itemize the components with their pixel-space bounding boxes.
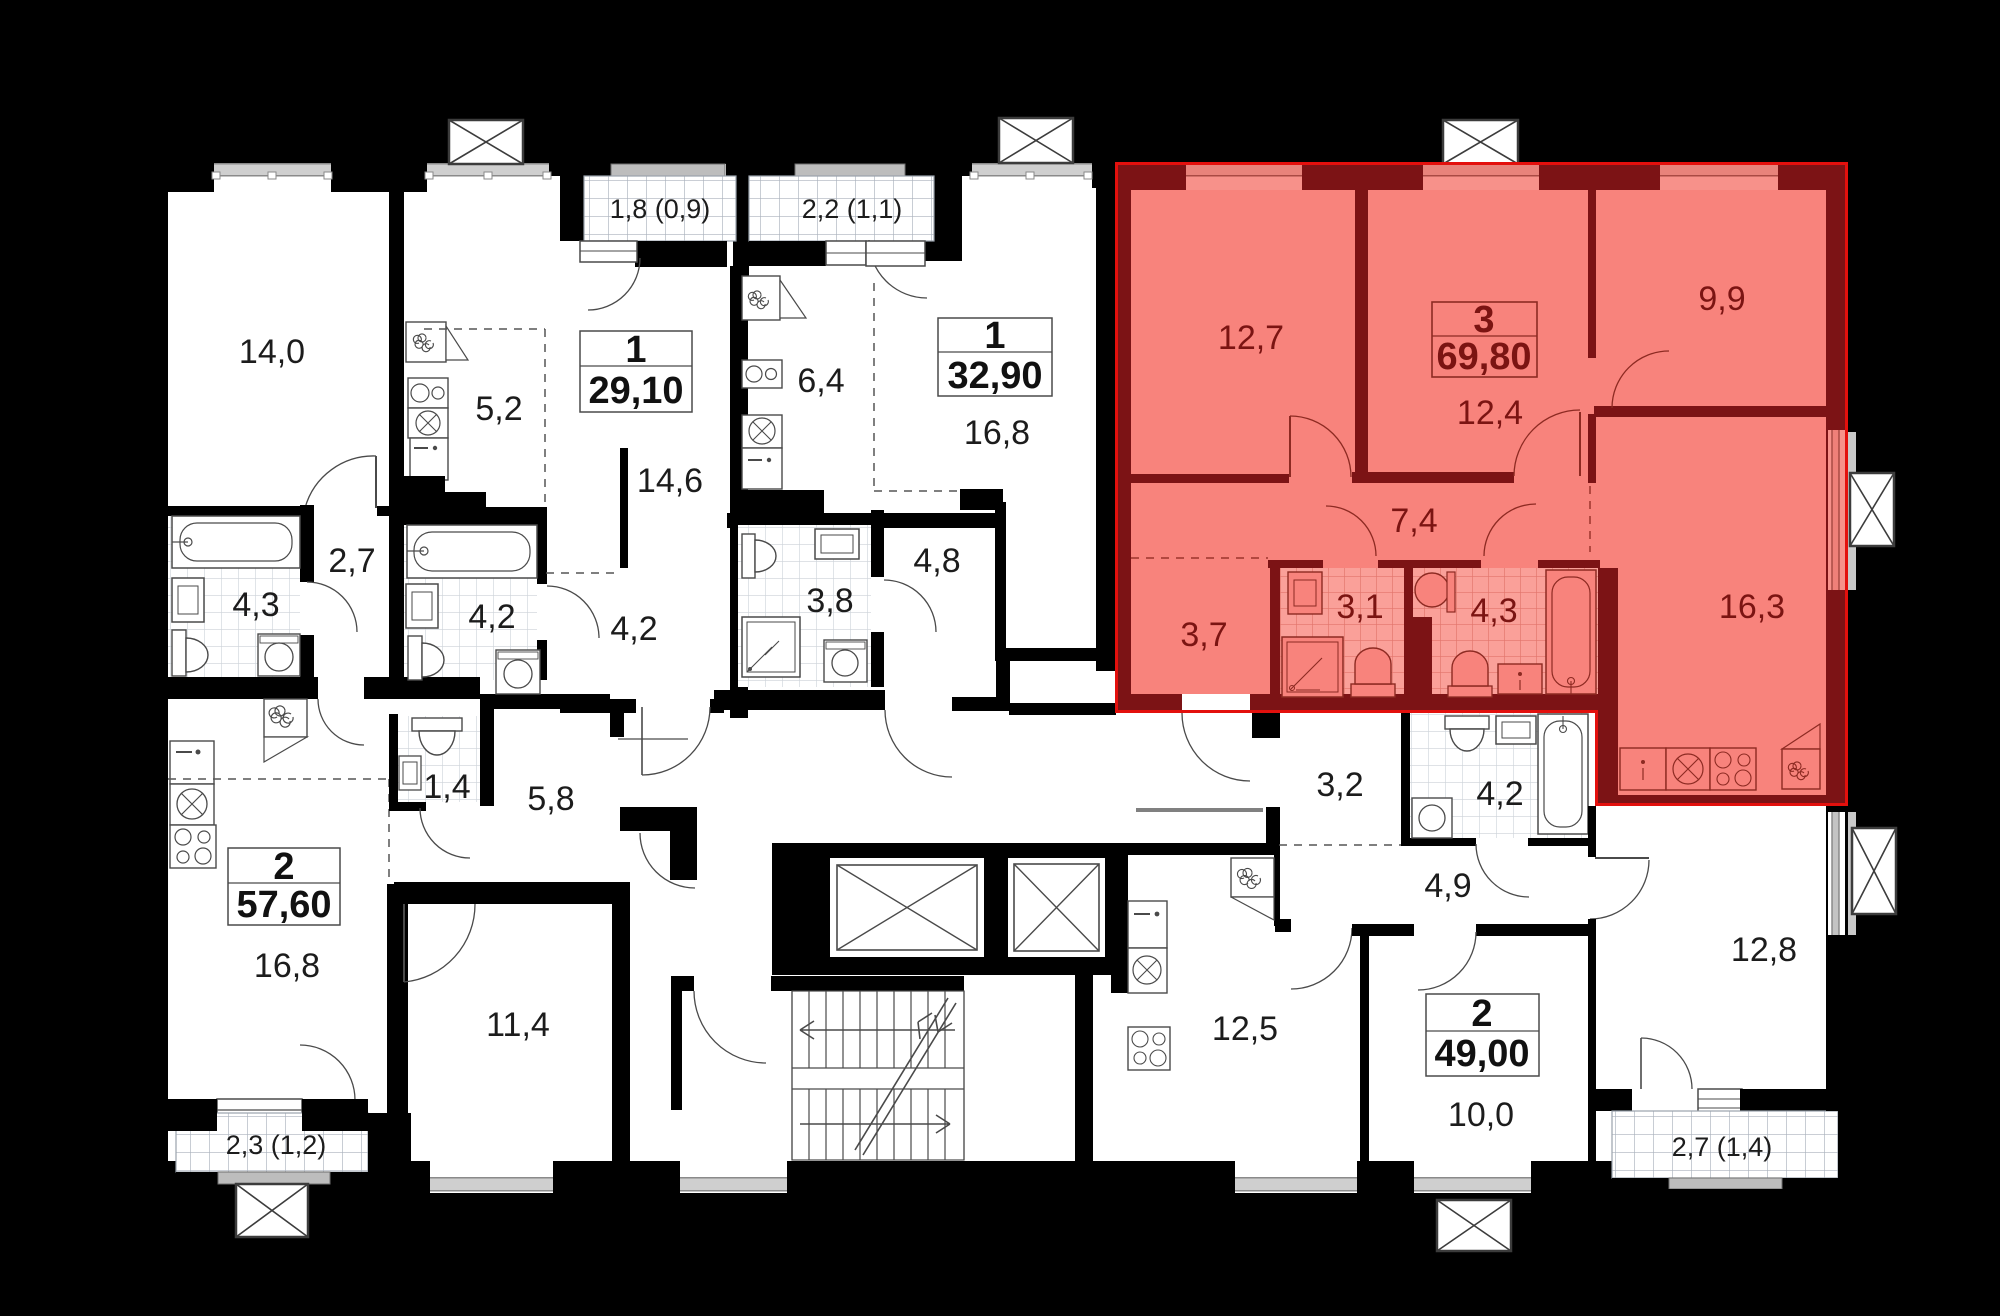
svg-text:32,90: 32,90 <box>947 355 1042 397</box>
svg-text:16,8: 16,8 <box>964 414 1030 452</box>
svg-text:14,0: 14,0 <box>239 333 305 371</box>
svg-text:69,80: 69,80 <box>1436 336 1531 378</box>
svg-text:1: 1 <box>625 329 646 371</box>
svg-text:11,4: 11,4 <box>486 1006 550 1044</box>
svg-text:4,8: 4,8 <box>913 542 960 580</box>
svg-text:10,0: 10,0 <box>1448 1096 1514 1134</box>
svg-text:12,5: 12,5 <box>1212 1010 1278 1048</box>
svg-text:2,7: 2,7 <box>328 542 375 580</box>
svg-text:2,2 (1,1): 2,2 (1,1) <box>802 194 903 224</box>
svg-text:5,2: 5,2 <box>475 390 522 428</box>
svg-text:7,4: 7,4 <box>1390 502 1437 540</box>
svg-text:3,1: 3,1 <box>1336 588 1383 626</box>
svg-text:4,9: 4,9 <box>1424 867 1471 905</box>
svg-text:57,60: 57,60 <box>236 884 331 926</box>
svg-text:4,3: 4,3 <box>232 586 279 624</box>
svg-text:2: 2 <box>273 846 294 888</box>
svg-text:12,4: 12,4 <box>1457 394 1523 432</box>
svg-text:2,3 (1,2): 2,3 (1,2) <box>226 1130 327 1160</box>
svg-text:9,9: 9,9 <box>1698 280 1745 318</box>
svg-text:4,2: 4,2 <box>610 610 657 648</box>
svg-text:29,10: 29,10 <box>588 370 683 412</box>
svg-text:4,2: 4,2 <box>468 598 515 636</box>
svg-text:1,8 (0,9): 1,8 (0,9) <box>610 194 711 224</box>
svg-text:3: 3 <box>1473 299 1494 341</box>
svg-text:3,7: 3,7 <box>1180 616 1227 654</box>
svg-text:4,3: 4,3 <box>1470 592 1517 630</box>
svg-text:2,7 (1,4): 2,7 (1,4) <box>1672 1132 1773 1162</box>
svg-text:12,8: 12,8 <box>1731 931 1797 969</box>
svg-text:2: 2 <box>1471 993 1492 1035</box>
svg-text:12,7: 12,7 <box>1218 319 1284 357</box>
svg-text:49,00: 49,00 <box>1434 1033 1529 1075</box>
svg-text:5,8: 5,8 <box>527 780 574 818</box>
svg-text:6,4: 6,4 <box>797 362 844 400</box>
svg-text:16,3: 16,3 <box>1719 588 1785 626</box>
svg-text:4,2: 4,2 <box>1476 775 1523 813</box>
svg-text:14,6: 14,6 <box>637 462 703 500</box>
svg-text:3,2: 3,2 <box>1316 766 1363 804</box>
svg-text:1,4: 1,4 <box>423 768 470 806</box>
svg-text:16,8: 16,8 <box>254 947 320 985</box>
svg-text:3,8: 3,8 <box>806 582 853 620</box>
svg-text:1: 1 <box>984 315 1005 357</box>
